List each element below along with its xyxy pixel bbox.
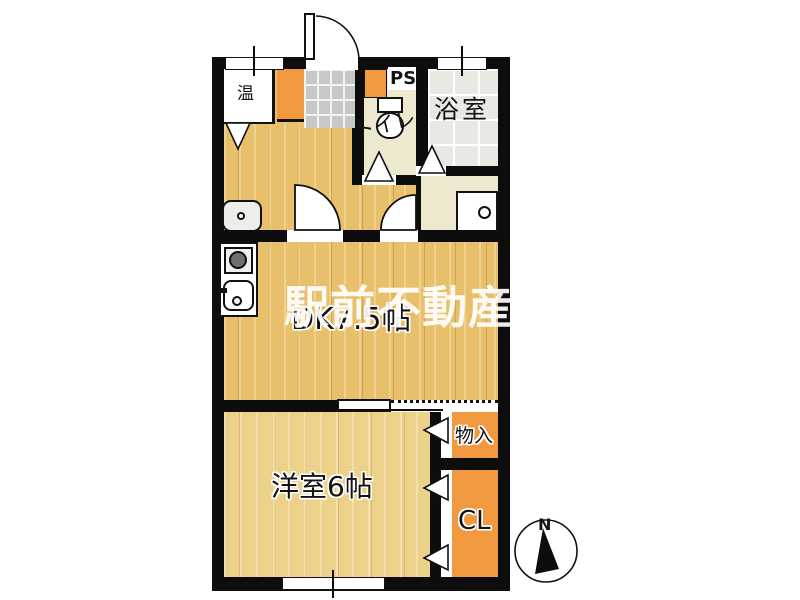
dk-door-swing-icon — [295, 185, 340, 230]
closet-folding-door-upper-icon — [424, 475, 448, 500]
storage-label: 物入 — [455, 427, 493, 446]
closet-label: CL — [458, 508, 491, 534]
bathroom-label: 浴室 — [434, 97, 490, 122]
western-room-label: 洋室6帖 — [271, 473, 373, 501]
compass-north-label: N — [538, 517, 551, 533]
floor-plan: 温 PS 浴室 トイレ DK7.5帖 洋室6帖 物入 CL N 駅前不動産 — [0, 0, 800, 600]
water-heater-label: 温 — [237, 86, 254, 103]
pipe-space-label: PS — [390, 70, 416, 88]
entrance-door-swing-icon — [316, 16, 359, 61]
toilet-door-icon — [365, 152, 393, 181]
water-heater-door-icon — [226, 123, 250, 149]
bathroom-door-icon — [419, 146, 445, 173]
storage-folding-door-icon — [424, 418, 448, 443]
closet-folding-door-lower-icon — [424, 545, 448, 570]
watermark: 駅前不動産 — [284, 271, 514, 336]
washroom-door-swing-icon — [381, 195, 416, 230]
